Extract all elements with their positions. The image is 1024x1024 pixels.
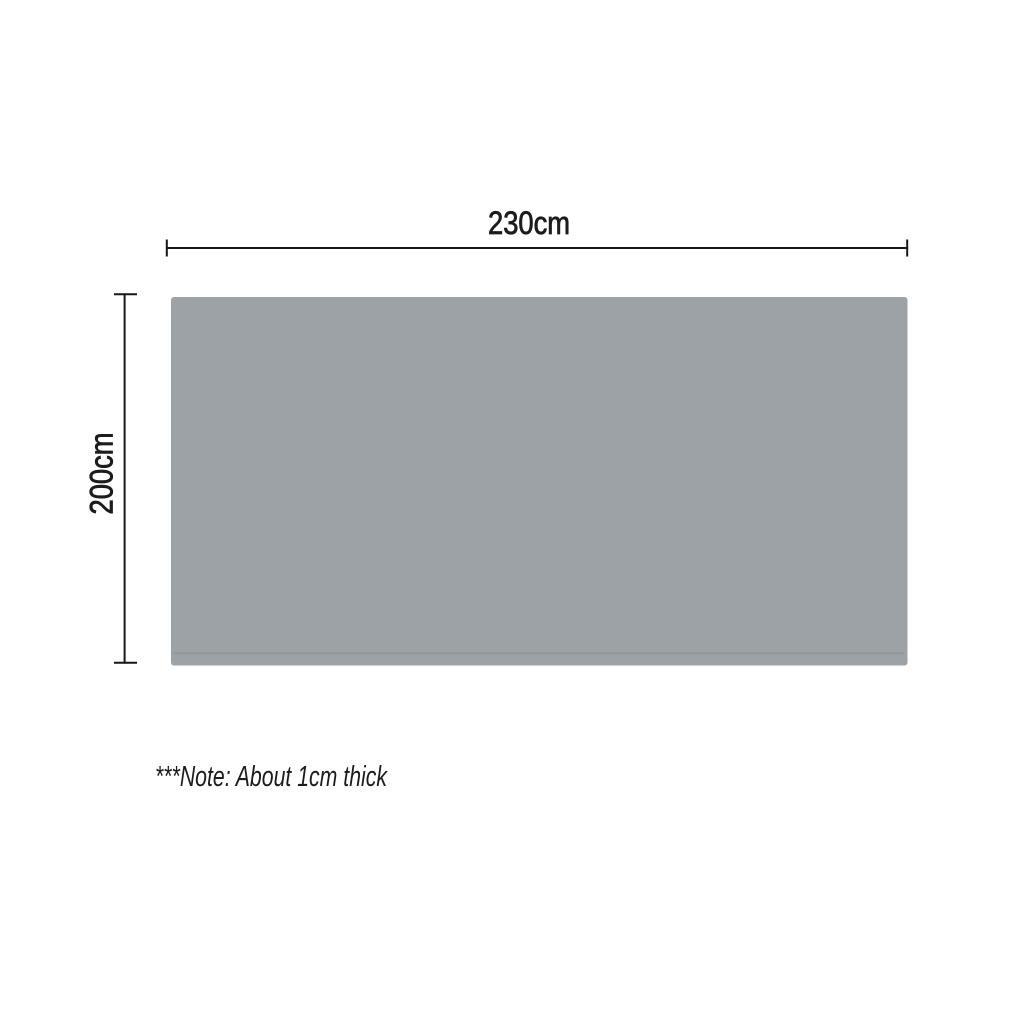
svg-text:***Note: About 1cm thick: ***Note: About 1cm thick [155,761,388,793]
svg-text:200cm: 200cm [84,433,120,515]
svg-text:230cm: 230cm [488,205,570,241]
